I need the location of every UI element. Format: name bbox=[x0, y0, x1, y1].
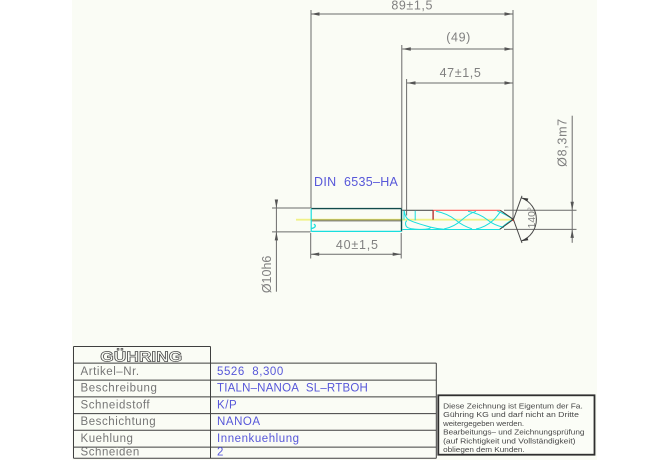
svg-text:140°: 140° bbox=[527, 207, 538, 228]
svg-text:weitergegeben werden.: weitergegeben werden. bbox=[442, 419, 524, 428]
svg-text:Beschichtung: Beschichtung bbox=[81, 416, 157, 428]
svg-text:(auf Richtigkeit und Vollständ: (auf Richtigkeit und Vollständigkeit) bbox=[443, 436, 575, 445]
svg-text:NANOA: NANOA bbox=[217, 416, 261, 428]
svg-text:40±1,5: 40±1,5 bbox=[336, 238, 379, 252]
svg-text:5526 8,300: 5526 8,300 bbox=[217, 366, 284, 378]
svg-text:Gühring KG und darf nicht an D: Gühring KG und darf nicht an Dritte bbox=[443, 410, 579, 419]
svg-text:Schneidstoff: Schneidstoff bbox=[81, 399, 151, 411]
svg-text:GÜHRING: GÜHRING bbox=[100, 348, 182, 365]
svg-text:obliegen dem Kunden.: obliegen dem Kunden. bbox=[443, 445, 525, 454]
svg-text:89±1,5: 89±1,5 bbox=[391, 0, 433, 13]
svg-text:47±1,5: 47±1,5 bbox=[440, 66, 482, 80]
svg-text:Artikel–Nr.: Artikel–Nr. bbox=[81, 366, 140, 378]
svg-text:(49): (49) bbox=[446, 31, 471, 45]
svg-text:Beschreibung: Beschreibung bbox=[81, 383, 158, 395]
svg-text:Ø8,3m7: Ø8,3m7 bbox=[555, 118, 569, 167]
svg-text:Bearbeitungs– und Zeichnungspr: Bearbeitungs– und Zeichnungsprüfung bbox=[443, 428, 584, 437]
svg-text:2: 2 bbox=[217, 447, 224, 459]
svg-text:Diese Zeichnung ist Eigentum d: Diese Zeichnung ist Eigentum der Fa. bbox=[443, 401, 583, 410]
svg-text:K/P: K/P bbox=[217, 399, 237, 411]
svg-text:TIALN–NANOA SL–RTBOH: TIALN–NANOA SL–RTBOH bbox=[217, 383, 368, 395]
svg-text:Kuehlung: Kuehlung bbox=[81, 433, 134, 445]
svg-text:Schneiden: Schneiden bbox=[81, 447, 140, 459]
svg-text:Ø10h6: Ø10h6 bbox=[260, 256, 274, 294]
svg-text:DIN 6535–HA: DIN 6535–HA bbox=[314, 175, 399, 189]
svg-text:Innenkuehlung: Innenkuehlung bbox=[217, 433, 300, 445]
